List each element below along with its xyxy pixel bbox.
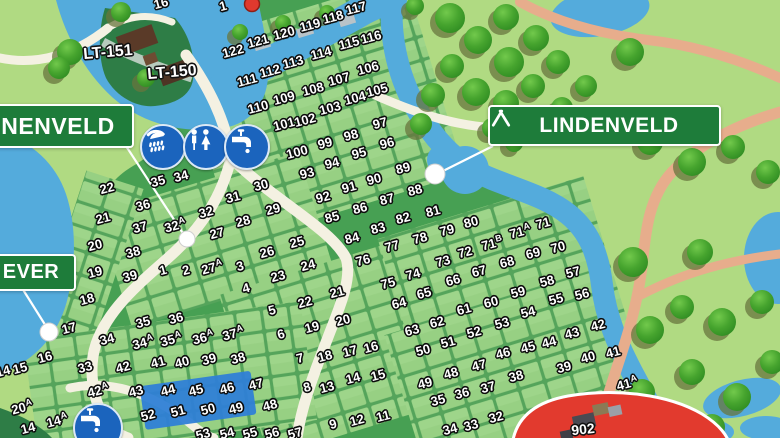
location-markers [22,146,493,341]
tree [401,0,424,20]
tree [611,38,644,71]
tree [570,75,597,102]
tree [405,113,432,140]
map-pin [245,0,260,12]
tree [516,74,545,103]
building-902-label: 902 [571,420,596,438]
location-dot [40,323,58,341]
tree [665,295,694,324]
tree [106,2,131,27]
location-dot [425,164,445,184]
banner-lindenveld-label: LINDENVELD [539,114,678,138]
tree [718,383,751,416]
tree [751,160,780,189]
banner-ever-label: EVER [3,261,59,284]
tree [488,4,519,35]
tree [227,24,248,45]
campground-map: 1611221211201191181171111121131141151161… [0,0,780,438]
location-dot [179,231,195,247]
tree [703,308,736,341]
tree [745,290,774,319]
tree [673,148,706,181]
tree [631,316,664,349]
tree [459,26,492,59]
tree [270,15,291,36]
highlighted-plots-area [140,371,257,430]
tree [430,3,465,38]
banner-nenveld: NENVELD [0,104,134,148]
tree [674,359,705,390]
shower-icon [140,124,186,170]
tree [755,350,780,379]
tree [435,54,464,83]
tree [613,247,648,282]
banner-nenveld-label: NENVELD [1,113,114,140]
building-902 [512,393,731,438]
banner-lindenveld: LINDENVELD [488,105,721,146]
tree [489,47,524,82]
tree [457,78,490,111]
tree [43,57,70,84]
tree [541,50,570,79]
overlay-layer [0,0,780,438]
banner-ever: EVER [0,254,76,291]
water-tap-icon [224,124,270,170]
toilets-icon [183,124,229,170]
tree [682,239,713,270]
tree [416,83,445,112]
tree [518,25,549,56]
tree [314,5,335,26]
